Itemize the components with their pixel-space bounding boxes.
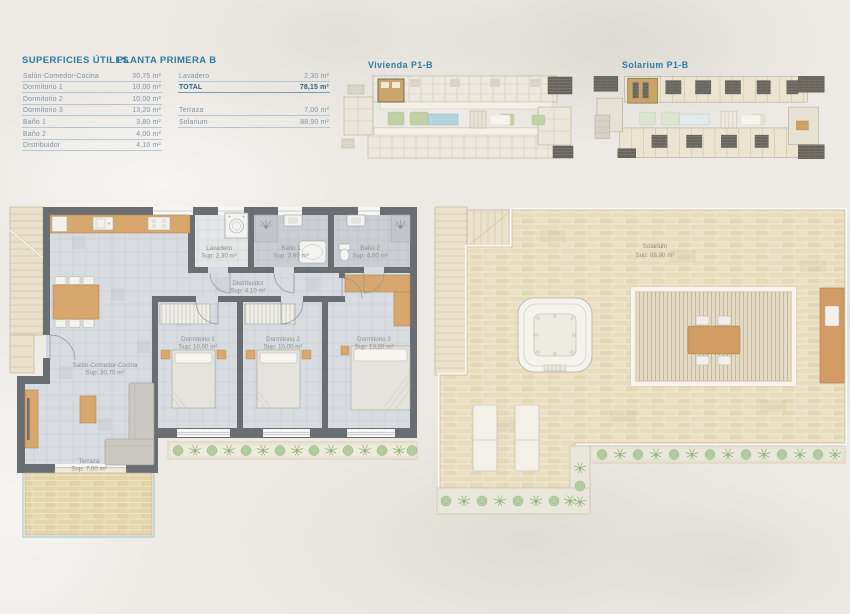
table-row: Lavadero2,30 m² <box>178 70 330 82</box>
areas-table-left: Salón-Comedor-Cocina30,75 m² Dormitorio … <box>22 70 162 151</box>
row-value: 78,15 m² <box>300 84 329 91</box>
solar-panel-array <box>798 76 824 92</box>
table-row: Dormitorio 210,00 m² <box>22 93 162 105</box>
washing-machine <box>225 213 248 238</box>
courtyard <box>388 111 545 128</box>
unit-pergola <box>633 82 639 98</box>
jacuzzi <box>518 298 592 372</box>
room-label-bano2: Baño 2 <box>360 245 380 252</box>
room-label-terraza: Terraza <box>79 458 100 465</box>
row-label: Solarium <box>179 119 208 126</box>
mini-plan-vivienda-label: Vivienda P1-B <box>368 60 433 70</box>
table-row-total: TOTAL78,15 m² <box>178 82 330 94</box>
room-label-distribuidor: Distribuidor <box>232 280 263 287</box>
row-value: 10,00 m² <box>132 84 161 91</box>
room-label-dorm2: Dormitorio 2 <box>266 336 300 343</box>
room-label-dorm1: Dormitorio 1 <box>181 336 215 343</box>
room-sup-solarium: Sup: 88,90 m² <box>636 252 675 259</box>
outdoor-table <box>688 326 740 354</box>
table-row: Distribuidor4,10 m² <box>22 140 162 152</box>
areas-table-right: Lavadero2,30 m² TOTAL78,15 m² Terraza7,0… <box>178 70 330 128</box>
table-row: Salón-Comedor-Cocina30,75 m² <box>22 70 162 82</box>
unit-detail <box>381 82 389 88</box>
row-value: 4,00 m² <box>136 131 161 138</box>
coffee-table <box>80 396 96 423</box>
row-label: TOTAL <box>179 84 202 91</box>
row-value: 88,90 m² <box>300 119 329 126</box>
solar-panel-array <box>553 146 573 158</box>
table-row: Dormitorio 313,20 m² <box>22 105 162 117</box>
table-row: Dormitorio 110,00 m² <box>22 82 162 94</box>
terraza <box>23 468 154 537</box>
room-sup-bano2: Sup: 4,00 m² <box>352 253 387 260</box>
row-value: 7,00 m² <box>304 107 329 114</box>
row-label: Terraza <box>179 107 203 114</box>
solar-panel-array <box>594 76 618 91</box>
chair <box>696 316 709 325</box>
dining-table <box>53 277 99 328</box>
highlighted-solarium-unit <box>628 78 658 103</box>
solar-panel-array <box>798 145 824 159</box>
row-label: Lavadero <box>179 73 209 80</box>
solar-panel-array <box>618 149 636 158</box>
floor-plan-vivienda: Lavadero Sup: 2,30 m² Baño 1 Sup: 3,80 m… <box>8 200 428 545</box>
room-sup-lavadero: Sup: 2,30 m² <box>201 253 236 260</box>
row-label: Distribuidor <box>23 142 60 149</box>
building-lower-roof <box>620 128 805 158</box>
row-value: 13,20 m² <box>132 107 161 114</box>
chair <box>718 356 731 365</box>
room-sup-salon: Sup: 30,75 m² <box>86 370 125 377</box>
row-label: Baño 1 <box>23 119 46 126</box>
row-value: 3,80 m² <box>136 119 161 126</box>
room-sup-distribuidor: Sup: 4,10 m² <box>230 288 265 295</box>
room-sup-dorm1: Sup: 10,00 m² <box>179 344 218 351</box>
mini-plan-solarium <box>592 73 850 165</box>
kitchen-counter <box>50 215 190 233</box>
row-label: Baño 2 <box>23 131 46 138</box>
table-row: Baño 13,80 m² <box>22 116 162 128</box>
courtyard-roof <box>640 111 765 128</box>
pergola <box>631 287 796 386</box>
unit-detail <box>392 82 400 88</box>
bed-dorm3 <box>341 346 410 410</box>
mini-plan-solarium-label: Solarium P1-B <box>622 60 689 70</box>
row-label: Dormitorio 3 <box>23 107 63 114</box>
building-lower <box>368 128 554 158</box>
pool <box>428 114 458 125</box>
chair <box>718 316 731 325</box>
row-value: 10,00 m² <box>132 96 161 103</box>
pool-outline <box>679 114 709 125</box>
room-label-solarium: Solarium <box>643 243 667 250</box>
row-label: Salón-Comedor-Cocina <box>23 73 99 80</box>
wardrobe-dorm2 <box>245 304 295 324</box>
floor-plan-solarium: Solarium Sup: 88,90 m² <box>430 200 850 520</box>
row-label: Dormitorio 2 <box>23 96 63 103</box>
unit-pergola <box>643 82 649 98</box>
exterior-stairs <box>10 207 43 373</box>
room-label-bano1: Baño 1 <box>281 245 301 252</box>
planta-title: PLANTA PRIMERA B <box>117 55 216 66</box>
table-row: Solarium88,90 m² <box>178 116 330 128</box>
room-sup-dorm2: Sup: 10,00 m² <box>264 344 303 351</box>
row-value: 4,10 m² <box>136 142 161 149</box>
room-sup-dorm3: Sup: 13,20 m² <box>355 344 394 351</box>
floorplan-sheet: { "header": { "superficies_title": "SUPE… <box>0 0 850 614</box>
room-sup-bano1: Sup: 3,80 m² <box>273 253 308 260</box>
planter-strip <box>168 442 417 459</box>
table-row: Baño 24,00 m² <box>22 128 162 140</box>
table-spacer <box>178 93 330 105</box>
room-label-lavadero: Lavadero <box>206 245 232 252</box>
table-row: Terraza7,00 m² <box>178 105 330 117</box>
wood-bench <box>820 288 844 383</box>
row-value: 30,75 m² <box>132 73 161 80</box>
room-label-dorm3: Dormitorio 3 <box>357 336 391 343</box>
chair <box>696 356 709 365</box>
room-label-salon: Salón-Comedor-Cocina <box>73 362 138 369</box>
wardrobe-dorm1 <box>160 304 210 324</box>
tv-unit <box>25 390 38 448</box>
mini-plan-vivienda <box>340 73 600 165</box>
row-label: Dormitorio 1 <box>23 84 63 91</box>
solar-panel-array <box>548 77 572 94</box>
superficies-title: SUPERFICIES ÚTILES <box>22 55 129 66</box>
room-sup-terraza: Sup: 7,00 m² <box>71 466 106 473</box>
row-value: 2,30 m² <box>304 73 329 80</box>
